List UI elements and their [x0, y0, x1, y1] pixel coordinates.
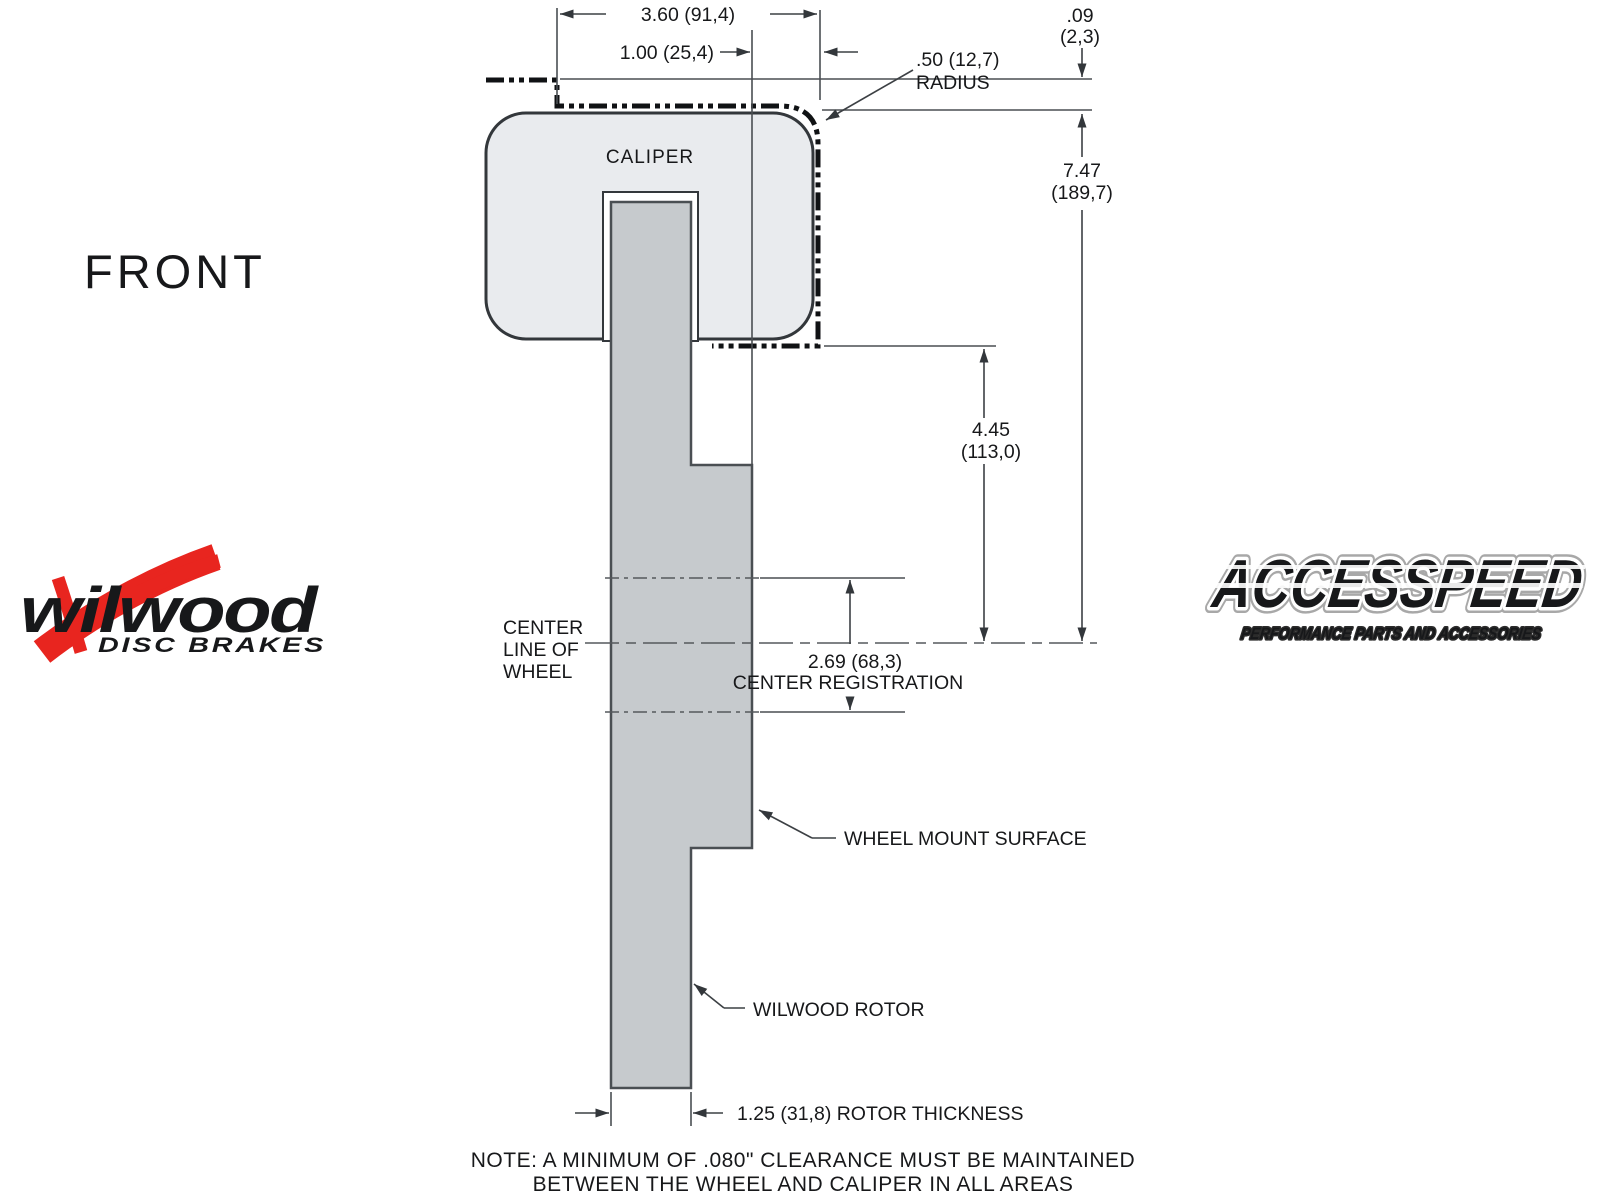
wheel-mount-leader-line	[759, 810, 812, 838]
brake-diagram-canvas: FRONT CALIPER 3.60 (91,4) 1.00 (25,4) .5…	[0, 0, 1600, 1200]
wilwood-subtitle: DISC BRAKES	[98, 634, 326, 657]
dim-747-value: 7.47	[1063, 160, 1101, 182]
accesspeed-streak-1	[1215, 565, 1586, 569]
radius-text-value: .50 (12,7)	[916, 49, 999, 71]
dim-125-label: 1.25 (31,8) ROTOR THICKNESS	[737, 1103, 1023, 1125]
radius-text-label: RADIUS	[916, 72, 990, 94]
rotor-label: WILWOOD ROTOR	[753, 999, 925, 1021]
accesspeed-subtitle: PERFORMANCE PARTS AND ACCESSORIES	[1240, 624, 1543, 643]
dim-747-metric: (189,7)	[1051, 182, 1113, 204]
rotor-leader-line	[694, 984, 724, 1008]
dim-445-value: 4.45	[972, 419, 1010, 441]
radius-leader-line	[826, 70, 913, 120]
technical-drawing-page: FRONT CALIPER 3.60 (91,4) 1.00 (25,4) .5…	[0, 0, 1600, 1200]
dim-009-value: .09	[1066, 5, 1093, 27]
dim-269-value: 2.69 (68,3)	[808, 651, 902, 673]
wheel-mount-label: WHEEL MOUNT SURFACE	[844, 828, 1087, 850]
dim-009-metric: (2,3)	[1060, 26, 1100, 48]
centerline-label-3: WHEEL	[503, 661, 573, 683]
dim-269-label: CENTER REGISTRATION	[733, 672, 963, 694]
dim-445-metric: (113,0)	[961, 441, 1021, 463]
accesspeed-streak-2	[1213, 583, 1584, 588]
centerline-label-1: CENTER	[503, 617, 583, 639]
accesspeed-logo: ACCESSPEED ACCESSPEED ACCESSPEED PERFORM…	[1204, 546, 1588, 643]
dim-360-text: 3.60 (91,4)	[641, 4, 735, 26]
note-line-2: BETWEEN THE WHEEL AND CALIPER IN ALL ARE…	[533, 1173, 1074, 1196]
wilwood-logo: wilwood DISC BRAKES	[20, 557, 326, 657]
centerline-label-2: LINE OF	[503, 639, 579, 661]
caliper-label: CALIPER	[606, 147, 694, 168]
front-view-label: FRONT	[84, 245, 266, 298]
dim-100-text: 1.00 (25,4)	[620, 42, 714, 64]
note-line-1: NOTE: A MINIMUM OF .080" CLEARANCE MUST …	[471, 1149, 1135, 1172]
